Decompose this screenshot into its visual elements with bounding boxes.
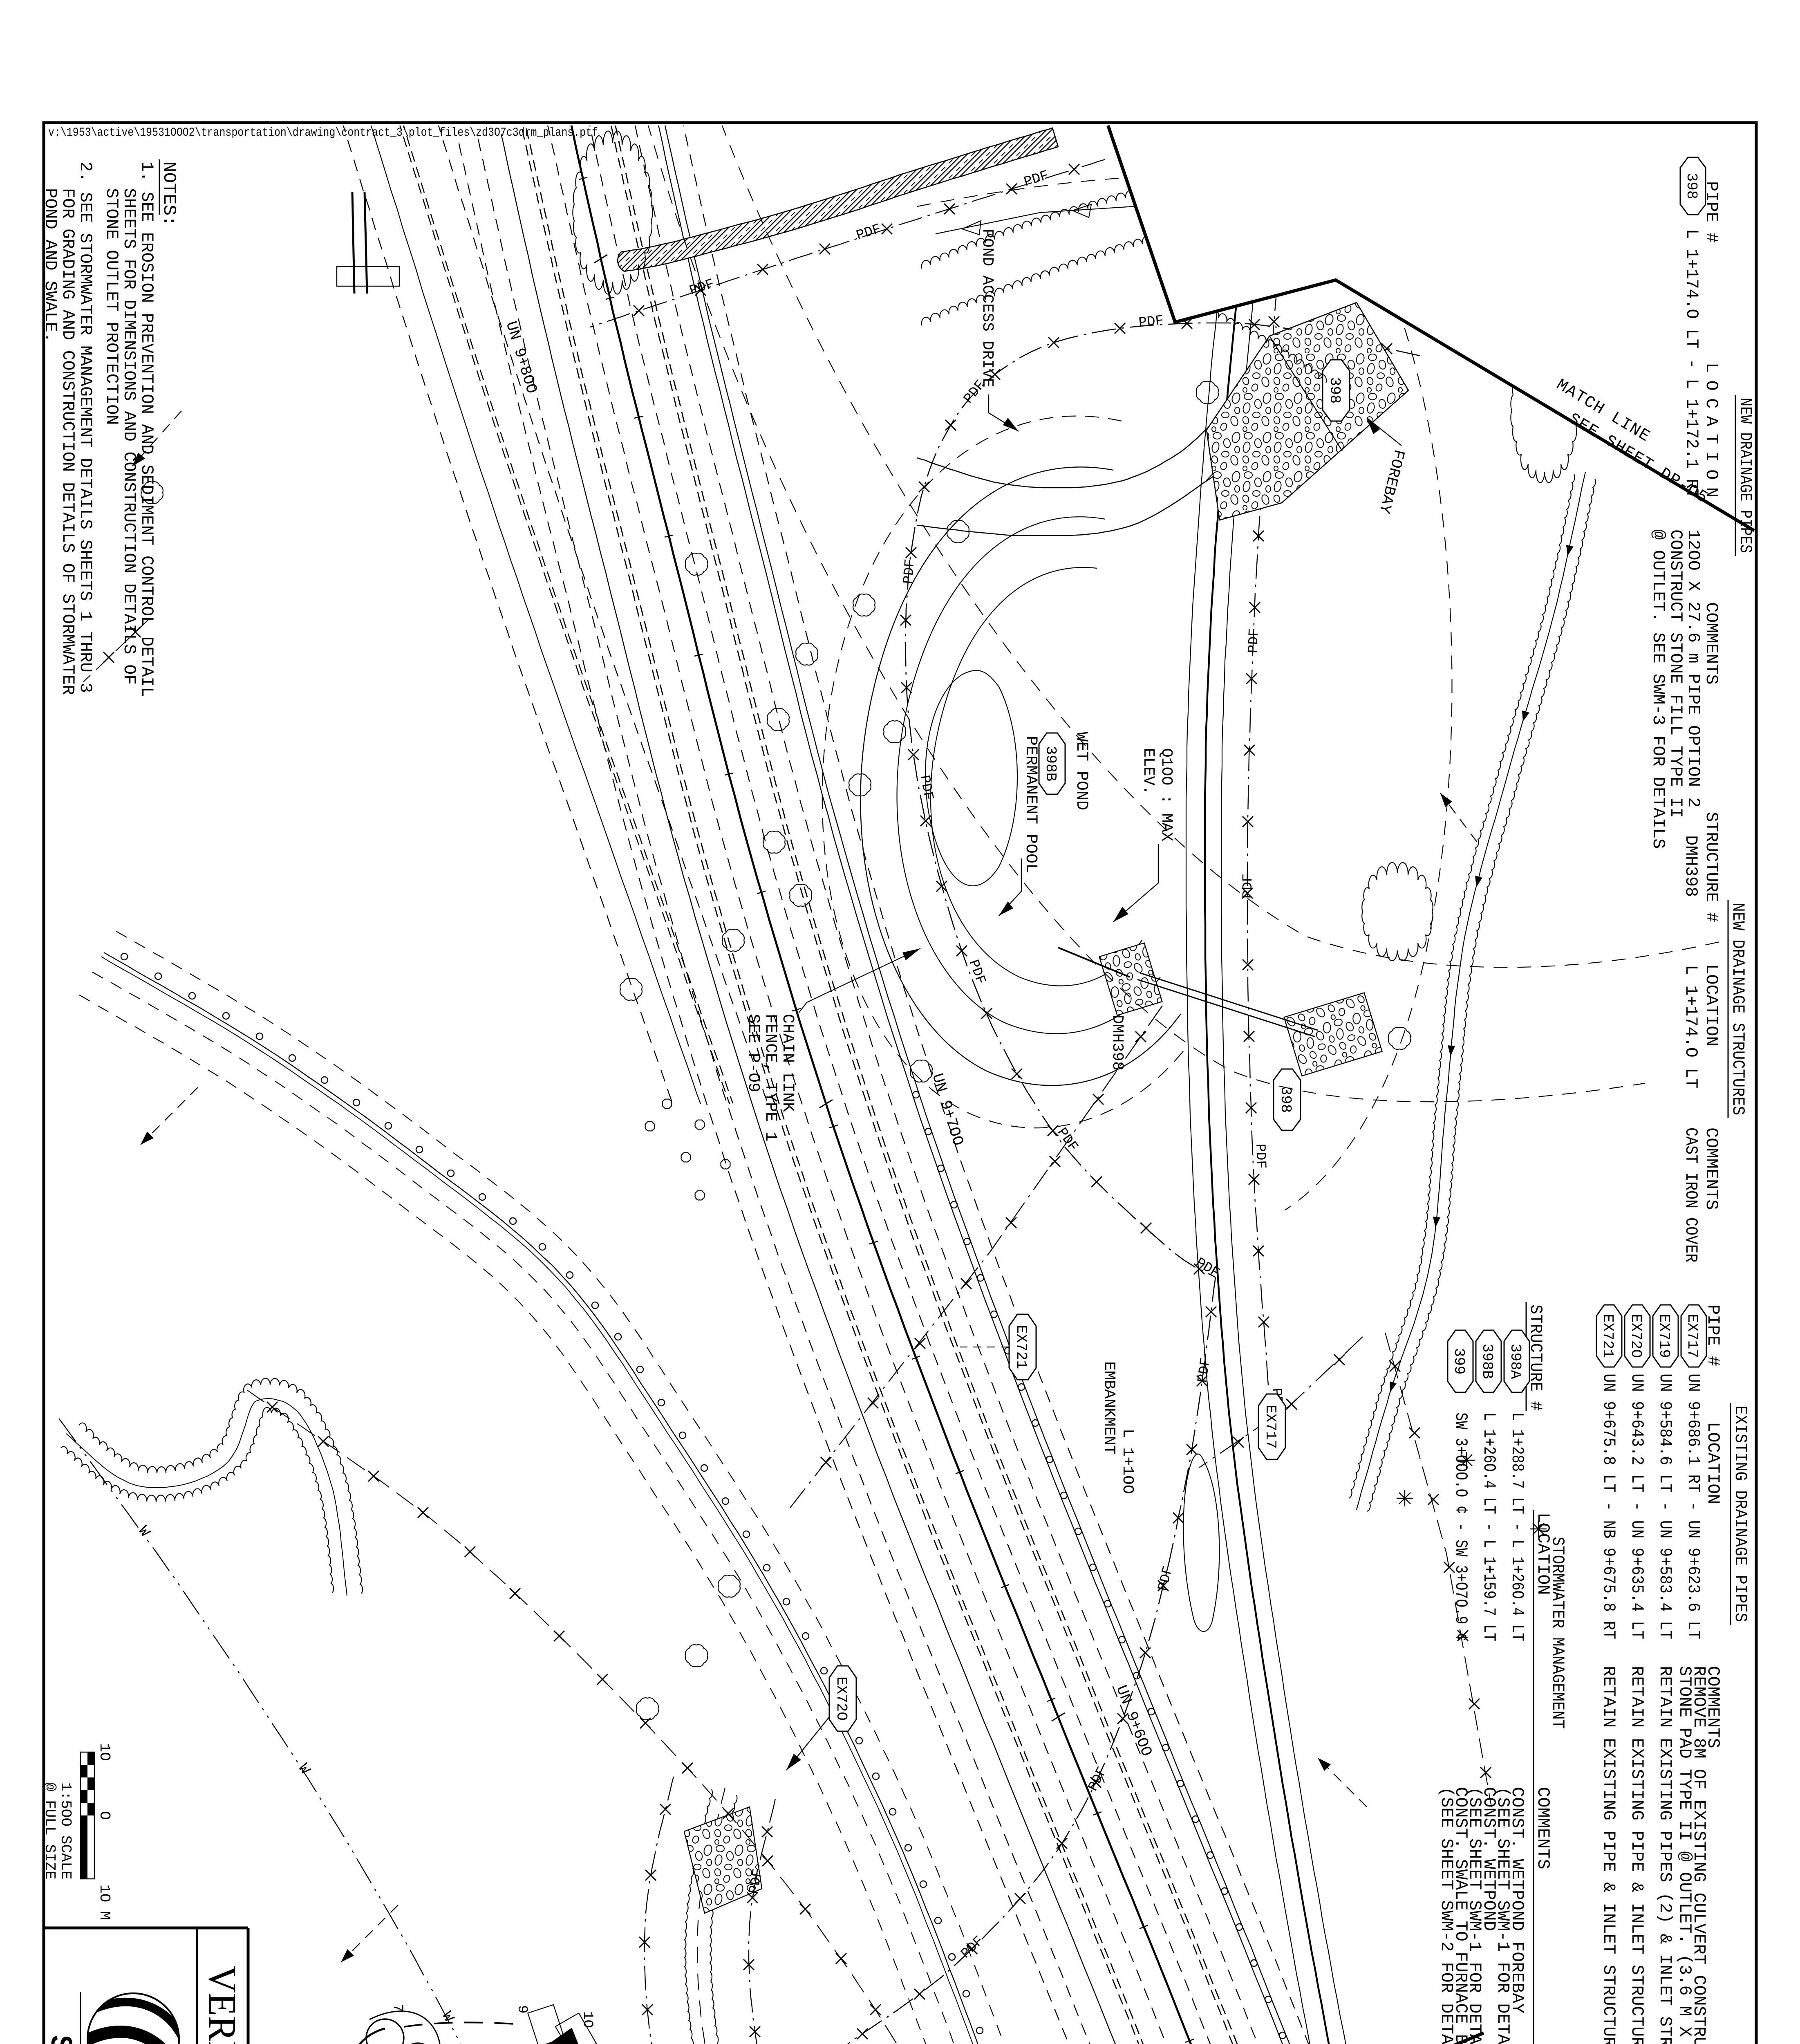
svg-text:2. SEE STORMWATER MANAGEMENT: 2. SEE STORMWATER MANAGEMENT DETAILS SHE… xyxy=(76,161,95,693)
svg-text:9: 9 xyxy=(514,2005,530,2013)
svg-text:O: O xyxy=(96,1811,113,1820)
svg-text:v:\1953\active\19531OOO2\trans: v:\1953\active\19531OOO2\transportation\… xyxy=(48,126,598,140)
svg-text:NEW DRAINAGE PIPES: NEW DRAINAGE PIPES xyxy=(1735,398,1755,553)
svg-text:PDF: PDF xyxy=(1246,628,1263,654)
svg-text:SHEETS FOR DIMENSIONS AND CONS: SHEETS FOR DIMENSIONS AND CONSTRUCTION D… xyxy=(119,188,139,685)
svg-text:LOCATION: LOCATION xyxy=(1701,964,1721,1047)
svg-text:STONE PAD TYPE II @ OUTLET. (3: STONE PAD TYPE II @ OUTLET. (3.6 M X 7.2… xyxy=(1675,1666,1695,2044)
svg-text:EXISTING DRAINAGE PIPES: EXISTING DRAINAGE PIPES xyxy=(1731,1405,1750,1622)
svg-text:STRUCTURE #: STRUCTURE # xyxy=(1701,812,1721,922)
svg-text:LOCATION: LOCATION xyxy=(1703,1422,1723,1504)
svg-text:1O M: 1O M xyxy=(96,1885,113,1920)
svg-text:L 1+174.O LT: L 1+174.O LT xyxy=(1681,965,1701,1088)
svg-text:SW 3+OOO.O ¢ - SW 3+O7O.9 ¢: SW 3+OOO.O ¢ - SW 3+O7O.9 ¢ xyxy=(1451,1412,1471,1641)
svg-text:LOCATION: LOCATION xyxy=(1533,1513,1553,1595)
svg-text:COMMENTS: COMMENTS xyxy=(1701,1127,1721,1210)
svg-text:L 1+174.O LT - L 1+172.1 RT: L 1+174.O LT - L 1+172.1 RT xyxy=(1682,229,1701,499)
svg-text:EMBANKMENT: EMBANKMENT xyxy=(1100,1361,1118,1455)
svg-text:WET POND: WET POND xyxy=(1072,732,1090,810)
svg-text:EX721: EX721 xyxy=(1599,1314,1616,1358)
svg-text:POND AND SWALE.: POND AND SWALE. xyxy=(40,188,60,343)
svg-text:POND ACCESS DRIVE: POND ACCESS DRIVE xyxy=(978,229,996,388)
svg-text:NOTES:: NOTES: xyxy=(159,161,179,226)
svg-text:FOR GRADING AND CONSTRUCTION D: FOR GRADING AND CONSTRUCTION DETAILS OF … xyxy=(58,188,78,695)
svg-text:398B: 398B xyxy=(1042,746,1059,781)
svg-text:PDF: PDF xyxy=(901,558,918,585)
svg-text:PERMANENT POOL: PERMANENT POOL xyxy=(1021,736,1040,873)
svg-text:PDF: PDF xyxy=(1138,313,1164,331)
svg-text:398: 398 xyxy=(1683,173,1700,199)
svg-text:COMMENTS: COMMENTS xyxy=(1701,602,1721,685)
svg-text:12OO X 27.6 m PIPE OPTION 2: 12OO X 27.6 m PIPE OPTION 2 xyxy=(1684,529,1703,808)
svg-text:RETAIN EXISTING PIPE & INLET S: RETAIN EXISTING PIPE & INLET STRUCTURE xyxy=(1627,1666,1647,2044)
svg-text:ELEV.: ELEV. xyxy=(1140,748,1157,795)
svg-text:399: 399 xyxy=(1451,1348,1467,1375)
svg-text:RETAIN EXISTING PIPE & INLET S: RETAIN EXISTING PIPE & INLET STRUCTURE xyxy=(1599,1666,1619,2044)
svg-text:7: 7 xyxy=(390,2004,405,2012)
svg-text:CONSTRUCT STONE FILL TYPE II: CONSTRUCT STONE FILL TYPE II xyxy=(1666,529,1686,818)
svg-text:EX72O: EX72O xyxy=(1628,1314,1644,1358)
svg-text:NEW DRAINAGE STRUCTURES: NEW DRAINAGE STRUCTURES xyxy=(1728,903,1748,1115)
svg-text:UN 9+686.1 RT - UN 9+623.6 LT: UN 9+686.1 RT - UN 9+623.6 LT xyxy=(1684,1374,1703,1639)
svg-text:398B: 398B xyxy=(1479,1344,1496,1379)
svg-text:CHAIN LINK: CHAIN LINK xyxy=(778,1014,797,1112)
svg-text:UN 9+643.2 LT - UN 9+635.4 LT: UN 9+643.2 LT - UN 9+635.4 LT xyxy=(1627,1374,1647,1639)
svg-text:1O: 1O xyxy=(580,2011,595,2028)
svg-text:CAST IRON COVER: CAST IRON COVER xyxy=(1681,1127,1701,1262)
svg-text:UN 9+675.8 LT - NB 9+675.8 RT: UN 9+675.8 LT - NB 9+675.8 RT xyxy=(1599,1374,1619,1639)
svg-text:L 1+1OO: L 1+1OO xyxy=(1119,1429,1136,1494)
svg-text:EX72O: EX72O xyxy=(833,1676,850,1721)
svg-text:L 1+26O.4 LT - L 1+159.7 LT: L 1+26O.4 LT - L 1+159.7 LT xyxy=(1479,1412,1499,1641)
svg-text:SEE P-O9: SEE P-O9 xyxy=(744,1014,762,1092)
svg-text:COMMENTS: COMMENTS xyxy=(1533,1787,1553,1869)
svg-text:EX721: EX721 xyxy=(1013,1325,1030,1369)
svg-text:Q1OO : MAX: Q1OO : MAX xyxy=(1157,748,1175,841)
svg-text:FENCE, TYPE 1: FENCE, TYPE 1 xyxy=(761,1014,779,1141)
svg-text:398: 398 xyxy=(1277,1087,1294,1113)
svg-text:@ FULL SIZE: @ FULL SIZE xyxy=(41,1782,58,1880)
svg-text:UN 9+584.6 LT - UN 9+583.4 LT: UN 9+584.6 LT - UN 9+583.4 LT xyxy=(1655,1374,1675,1639)
svg-text:DMH398: DMH398 xyxy=(1681,835,1701,897)
svg-text:398: 398 xyxy=(1326,377,1343,404)
svg-text:DMH398: DMH398 xyxy=(1108,1015,1126,1071)
svg-text:RETAIN EXISTING PIPES (2) & IN: RETAIN EXISTING PIPES (2) & INLET STRUCT… xyxy=(1655,1666,1675,2044)
svg-text:EX717: EX717 xyxy=(1262,1405,1279,1449)
svg-text:398A: 398A xyxy=(1507,1344,1524,1379)
svg-text:1O: 1O xyxy=(96,1743,113,1761)
svg-text:STONE OUTLET PROTECTION: STONE OUTLET PROTECTION xyxy=(102,188,121,425)
svg-text:PDF: PDF xyxy=(1252,1143,1268,1169)
svg-text:@ OUTLET. SEE SWM-3 FOR DETAIL: @ OUTLET. SEE SWM-3 FOR DETAILS xyxy=(1648,529,1668,849)
svg-text:1. SEE EROSION PREVENTION AND: 1. SEE EROSION PREVENTION AND SEDIMENT C… xyxy=(137,161,157,697)
svg-text:PDF: PDF xyxy=(1240,874,1256,899)
svg-text:1:5OO SCALE: 1:5OO SCALE xyxy=(57,1782,74,1880)
svg-text:EX717: EX717 xyxy=(1684,1314,1701,1358)
svg-text:(SEE SHEET SWM-2 FOR DETAILS): (SEE SHEET SWM-2 FOR DETAILS) xyxy=(1437,1787,1456,2044)
svg-text:L 1+288.7 LT - L 1+26O.4 LT: L 1+288.7 LT - L 1+26O.4 LT xyxy=(1507,1412,1527,1641)
svg-text:EX719: EX719 xyxy=(1656,1314,1672,1358)
svg-text:VERMONT AGENCY OF TRANSPORT: VERMONT AGENCY OF TRANSPORTATION xyxy=(201,1966,244,2044)
svg-text:Stantec: Stantec xyxy=(45,2035,78,2044)
